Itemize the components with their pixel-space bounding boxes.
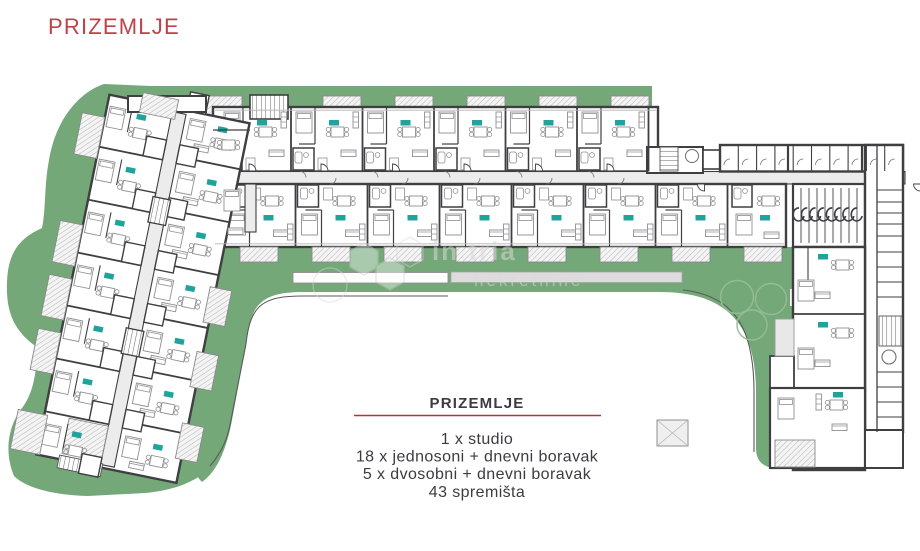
svg-text:PRIZEMLJE: PRIZEMLJE <box>48 14 180 39</box>
svg-text:in tria: in tria <box>432 236 517 266</box>
svg-text:1 x studio: 1 x studio <box>441 431 513 448</box>
svg-text:5 x dvosobni + dnevni boravak: 5 x dvosobni + dnevni boravak <box>363 466 592 483</box>
svg-text:18 x jednosoni + dnevni borava: 18 x jednosoni + dnevni boravak <box>356 449 599 466</box>
svg-text:PRIZEMLJE: PRIZEMLJE <box>430 395 525 412</box>
svg-text:43 spremišta: 43 spremišta <box>429 484 525 501</box>
svg-text:nekretnine: nekretnine <box>474 271 583 290</box>
